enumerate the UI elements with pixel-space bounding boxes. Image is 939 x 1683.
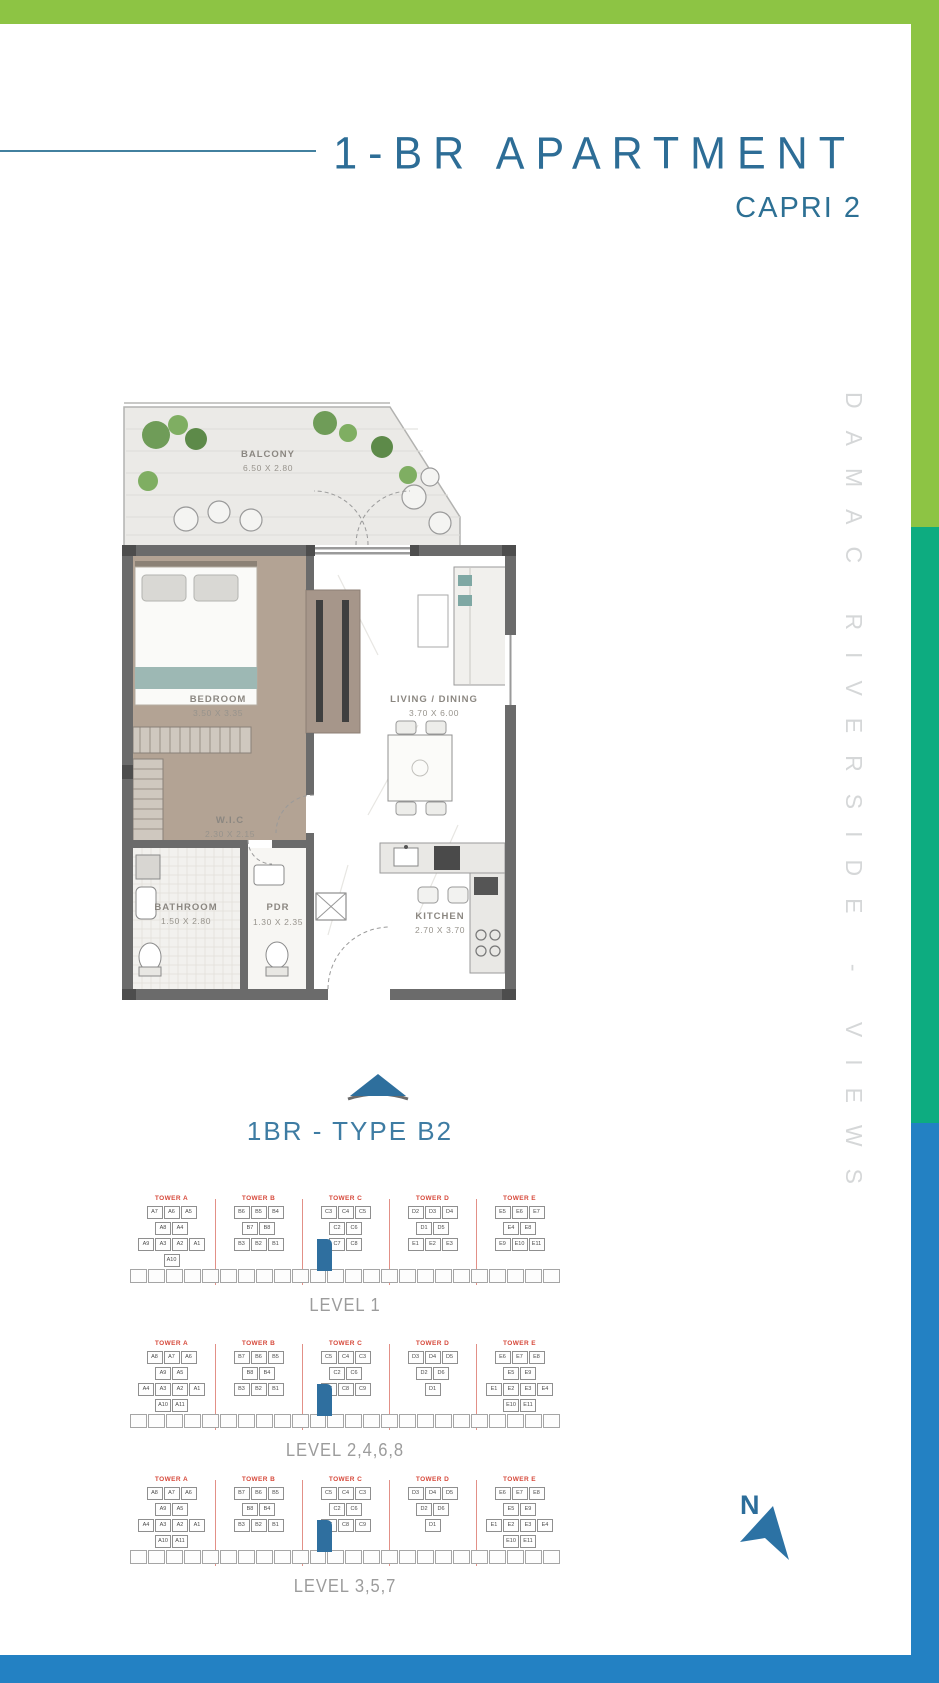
- unit-box: [363, 1414, 380, 1428]
- unit-box: E4: [537, 1519, 553, 1532]
- unit-box: [220, 1269, 237, 1283]
- coffee-table: [418, 595, 448, 647]
- level-caption: LEVEL 2,4,6,8: [145, 1440, 544, 1461]
- unit-box: C2: [329, 1367, 345, 1380]
- unit-box: [274, 1414, 291, 1428]
- unit-box: [166, 1269, 183, 1283]
- unit-box: C3: [355, 1351, 371, 1364]
- unit-box: B4: [259, 1503, 275, 1516]
- room-label: LIVING / DINING: [390, 694, 478, 705]
- unit-box: [220, 1550, 237, 1564]
- unit-box: E2: [503, 1383, 519, 1396]
- unit-box: [238, 1414, 255, 1428]
- unit-box: E8: [529, 1351, 545, 1364]
- unit-box: D3: [425, 1206, 441, 1219]
- unit-box: [345, 1414, 362, 1428]
- unit-box: B5: [268, 1351, 284, 1364]
- unit-box: [166, 1414, 183, 1428]
- unit-box: C8: [346, 1238, 362, 1251]
- unit-box: [292, 1550, 309, 1564]
- unit-box: A8: [155, 1222, 171, 1235]
- unit-box: [327, 1269, 344, 1283]
- podium-unit-strip: [130, 1269, 560, 1283]
- unit-box: C3: [321, 1206, 337, 1219]
- unit-box: [543, 1414, 560, 1428]
- unit-box: [507, 1550, 524, 1564]
- unit-box: [327, 1414, 344, 1428]
- unit-box: [417, 1414, 434, 1428]
- unit-box: [453, 1269, 470, 1283]
- podium-unit-strip: [130, 1414, 560, 1428]
- unit-box: D1: [416, 1222, 432, 1235]
- unit-box: A10: [164, 1254, 180, 1267]
- unit-box: [471, 1414, 488, 1428]
- unit-box: [489, 1550, 506, 1564]
- room-dims: 2.70 X 3.70: [415, 925, 465, 935]
- unit-box: A11: [172, 1535, 188, 1548]
- unit-box: A2: [172, 1383, 188, 1396]
- unit-box: A3: [155, 1519, 171, 1532]
- kitchen-counters: [380, 843, 505, 973]
- unit-box: A6: [181, 1351, 197, 1364]
- unit-box: [363, 1550, 380, 1564]
- unit-box: B2: [251, 1383, 267, 1396]
- unit-box: [471, 1269, 488, 1283]
- unit-box: C5: [355, 1206, 371, 1219]
- brand-vertical-text: DAMAC RIVERSIDE - VIEWS: [840, 392, 867, 1472]
- unit-box: E8: [520, 1222, 536, 1235]
- unit-box: [274, 1269, 291, 1283]
- unit-box: B5: [251, 1206, 267, 1219]
- highlighted-unit: [317, 1520, 332, 1552]
- unit-box: [543, 1269, 560, 1283]
- unit-box: [507, 1269, 524, 1283]
- unit-box: A7: [164, 1351, 180, 1364]
- unit-box: A2: [172, 1238, 188, 1251]
- unit-box: E5: [503, 1367, 519, 1380]
- unit-box: B3: [234, 1238, 250, 1251]
- unit-box: E3: [442, 1238, 458, 1251]
- room-label: BALCONY: [241, 449, 295, 460]
- highlighted-unit: [317, 1239, 332, 1271]
- unit-box: [543, 1550, 560, 1564]
- unit-box: E9: [495, 1238, 511, 1251]
- unit-box: [310, 1414, 327, 1428]
- bottom-accent-bar: [0, 1655, 939, 1683]
- tower-label: TOWER E: [476, 1340, 563, 1347]
- unit-box: [166, 1550, 183, 1564]
- unit-box: [202, 1269, 219, 1283]
- unit-box: [381, 1414, 398, 1428]
- dining-table: [388, 721, 452, 815]
- unit-box: A7: [164, 1487, 180, 1500]
- unit-box: [453, 1550, 470, 1564]
- balcony-area: BALCONY 6.50 X 2.80: [124, 403, 460, 547]
- unit-box: [327, 1550, 344, 1564]
- unit-box: [184, 1414, 201, 1428]
- unit-box: D1: [425, 1383, 441, 1396]
- unit-box: A10: [155, 1535, 171, 1548]
- bed: [135, 561, 257, 705]
- unit-box: E11: [520, 1535, 536, 1548]
- tower-label: TOWER B: [215, 1195, 302, 1202]
- unit-box: B6: [234, 1206, 250, 1219]
- unit-box: [130, 1550, 147, 1564]
- room-label: PDR: [266, 902, 289, 913]
- unit-box: [489, 1414, 506, 1428]
- level-diagram-1: TOWER AA7A6A5A8A4A9A3A2A1A10TOWER BB6B5B…: [128, 1195, 562, 1295]
- tower-label: TOWER C: [302, 1195, 389, 1202]
- unit-box: B2: [251, 1519, 267, 1532]
- unit-box: [274, 1550, 291, 1564]
- unit-box: A9: [155, 1367, 171, 1380]
- unit-box: C9: [355, 1383, 371, 1396]
- unit-box: D3: [408, 1487, 424, 1500]
- unit-box: B7: [234, 1351, 250, 1364]
- unit-box: E6: [512, 1206, 528, 1219]
- unit-box: A10: [155, 1399, 171, 1412]
- unit-box: [202, 1550, 219, 1564]
- unit-box: A3: [155, 1238, 171, 1251]
- unit-box: D2: [408, 1206, 424, 1219]
- unit-box: B4: [268, 1206, 284, 1219]
- unit-box: A1: [189, 1238, 205, 1251]
- level-diagram-3: TOWER AA8A7A6A9A5A4A3A2A1A10A11TOWER BB7…: [128, 1476, 562, 1576]
- unit-box: A9: [155, 1503, 171, 1516]
- entrance-arrow-icon: [345, 1068, 411, 1102]
- unit-box: D3: [408, 1351, 424, 1364]
- unit-box: D5: [433, 1222, 449, 1235]
- unit-box: C4: [338, 1206, 354, 1219]
- unit-box: E10: [512, 1238, 528, 1251]
- unit-box: E10: [503, 1535, 519, 1548]
- unit-box: A5: [181, 1206, 197, 1219]
- unit-box: [184, 1550, 201, 1564]
- unit-box: [220, 1414, 237, 1428]
- unit-box: D4: [425, 1351, 441, 1364]
- unit-box: A11: [172, 1399, 188, 1412]
- unit-box: A1: [189, 1383, 205, 1396]
- unit-box: A1: [189, 1519, 205, 1532]
- tower-label: TOWER D: [389, 1340, 476, 1347]
- unit-box: D1: [425, 1519, 441, 1532]
- floor-plan-drawing: BALCONY 6.50 X 2.80: [118, 395, 518, 1010]
- unit-box: E1: [486, 1519, 502, 1532]
- unit-box: [256, 1550, 273, 1564]
- room-label: BATHROOM: [154, 902, 217, 913]
- tower-label: TOWER B: [215, 1340, 302, 1347]
- page-subtitle: CAPRI 2: [735, 192, 862, 225]
- unit-box: E4: [537, 1383, 553, 1396]
- brochure-page: 1-BR APARTMENT CAPRI 2 DAMAC RIVERSIDE -…: [0, 0, 939, 1683]
- unit-box: E4: [503, 1222, 519, 1235]
- unit-box: A4: [138, 1519, 154, 1532]
- unit-box: [507, 1414, 524, 1428]
- unit-box: B8: [242, 1367, 258, 1380]
- unit-box: [525, 1414, 542, 1428]
- tower-label: TOWER C: [302, 1340, 389, 1347]
- unit-box: D5: [442, 1351, 458, 1364]
- unit-box: [417, 1550, 434, 1564]
- unit-box: [489, 1269, 506, 1283]
- unit-box: [292, 1414, 309, 1428]
- unit-box: D6: [433, 1503, 449, 1516]
- level-caption: LEVEL 1: [145, 1295, 544, 1316]
- service-duct: [316, 893, 346, 920]
- unit-box: C8: [338, 1383, 354, 1396]
- page-title: 1-BR APARTMENT: [333, 128, 856, 180]
- unit-box: E1: [408, 1238, 424, 1251]
- unit-box: C6: [346, 1367, 362, 1380]
- north-indicator: N: [718, 1486, 808, 1576]
- unit-box: E11: [529, 1238, 545, 1251]
- unit-box: C5: [321, 1487, 337, 1500]
- right-accent-bar-blue: [911, 1123, 939, 1683]
- unit-box: C6: [346, 1503, 362, 1516]
- unit-box: D4: [425, 1487, 441, 1500]
- unit-box: E5: [495, 1206, 511, 1219]
- tower-label: TOWER D: [389, 1476, 476, 1483]
- room-dims: 3.50 X 3.35: [193, 708, 243, 718]
- unit-box: E5: [503, 1503, 519, 1516]
- unit-box: [435, 1269, 452, 1283]
- unit-box: C2: [329, 1503, 345, 1516]
- unit-box: E3: [520, 1519, 536, 1532]
- unit-box: B3: [234, 1383, 250, 1396]
- unit-box: A2: [172, 1519, 188, 1532]
- podium-unit-strip: [130, 1550, 560, 1564]
- unit-box: A7: [147, 1206, 163, 1219]
- room-label: KITCHEN: [415, 911, 464, 922]
- unit-box: B7: [242, 1222, 258, 1235]
- unit-box: B8: [259, 1222, 275, 1235]
- unit-box: E9: [520, 1367, 536, 1380]
- unit-box: B2: [251, 1238, 267, 1251]
- unit-box: E10: [503, 1399, 519, 1412]
- right-accent-bar-green: [911, 0, 939, 527]
- unit-box: [525, 1269, 542, 1283]
- unit-box: [256, 1414, 273, 1428]
- unit-box: C4: [338, 1351, 354, 1364]
- tower-label: TOWER E: [476, 1195, 563, 1202]
- unit-box: D6: [433, 1367, 449, 1380]
- unit-box: B6: [251, 1487, 267, 1500]
- unit-box: C3: [355, 1487, 371, 1500]
- unit-box: C5: [321, 1351, 337, 1364]
- unit-box: [148, 1269, 165, 1283]
- unit-box: B5: [268, 1487, 284, 1500]
- unit-box: [345, 1550, 362, 1564]
- plan-type-label: 1BR - TYPE B2: [150, 1116, 550, 1147]
- tower-label: TOWER E: [476, 1476, 563, 1483]
- unit-box: [148, 1550, 165, 1564]
- tower-label: TOWER A: [128, 1195, 215, 1202]
- unit-box: [399, 1550, 416, 1564]
- unit-box: B7: [234, 1487, 250, 1500]
- room-dims: 2.30 X 2.15: [205, 829, 255, 839]
- unit-box: [130, 1269, 147, 1283]
- top-accent-bar: [0, 0, 939, 24]
- unit-box: C2: [329, 1222, 345, 1235]
- room-dims: 1.50 X 2.80: [161, 916, 211, 926]
- unit-box: E2: [503, 1519, 519, 1532]
- unit-box: [435, 1414, 452, 1428]
- unit-box: E3: [520, 1383, 536, 1396]
- unit-box: [202, 1414, 219, 1428]
- unit-box: D5: [442, 1487, 458, 1500]
- unit-box: [417, 1269, 434, 1283]
- unit-box: [363, 1269, 380, 1283]
- unit-box: [399, 1269, 416, 1283]
- unit-box: [256, 1269, 273, 1283]
- unit-box: B6: [251, 1351, 267, 1364]
- unit-box: [238, 1269, 255, 1283]
- unit-box: D4: [442, 1206, 458, 1219]
- tower-label: TOWER B: [215, 1476, 302, 1483]
- right-accent-bar-emerald: [911, 527, 939, 1123]
- unit-box: C8: [338, 1519, 354, 1532]
- unit-box: E7: [512, 1487, 528, 1500]
- tower-label: TOWER C: [302, 1476, 389, 1483]
- unit-box: [471, 1550, 488, 1564]
- unit-box: E2: [425, 1238, 441, 1251]
- unit-box: [310, 1550, 327, 1564]
- unit-box: B8: [242, 1503, 258, 1516]
- unit-box: B1: [268, 1238, 284, 1251]
- room-label: BEDROOM: [190, 694, 247, 705]
- unit-box: E11: [520, 1399, 536, 1412]
- unit-box: A6: [181, 1487, 197, 1500]
- tower-label: TOWER D: [389, 1195, 476, 1202]
- unit-box: A4: [172, 1222, 188, 1235]
- unit-box: A8: [147, 1487, 163, 1500]
- unit-box: E6: [495, 1351, 511, 1364]
- unit-box: E1: [486, 1383, 502, 1396]
- unit-box: A9: [138, 1238, 154, 1251]
- unit-box: B4: [259, 1367, 275, 1380]
- sofa: [454, 567, 506, 685]
- unit-box: [381, 1269, 398, 1283]
- unit-box: [399, 1414, 416, 1428]
- unit-box: [435, 1550, 452, 1564]
- unit-box: [381, 1550, 398, 1564]
- unit-box: E9: [520, 1503, 536, 1516]
- title-rule-line: [0, 150, 316, 152]
- unit-box: D2: [416, 1367, 432, 1380]
- room-dims: 1.30 X 2.35: [253, 917, 303, 927]
- level-caption: LEVEL 3,5,7: [145, 1576, 544, 1597]
- unit-box: A3: [155, 1383, 171, 1396]
- unit-box: E8: [529, 1487, 545, 1500]
- unit-box: B1: [268, 1383, 284, 1396]
- unit-box: C4: [338, 1487, 354, 1500]
- unit-box: E7: [529, 1206, 545, 1219]
- unit-box: A4: [138, 1383, 154, 1396]
- unit-box: E7: [512, 1351, 528, 1364]
- unit-box: [310, 1269, 327, 1283]
- room-label: W.I.C: [216, 815, 244, 826]
- unit-box: [148, 1414, 165, 1428]
- unit-box: [525, 1550, 542, 1564]
- unit-box: A8: [147, 1351, 163, 1364]
- unit-box: [345, 1269, 362, 1283]
- unit-box: A5: [172, 1503, 188, 1516]
- room-dims: 6.50 X 2.80: [243, 463, 293, 473]
- tower-label: TOWER A: [128, 1476, 215, 1483]
- wardrobe: [306, 590, 360, 733]
- tower-label: TOWER A: [128, 1340, 215, 1347]
- unit-box: B3: [234, 1519, 250, 1532]
- highlighted-unit: [317, 1384, 332, 1416]
- unit-box: [453, 1414, 470, 1428]
- unit-box: [292, 1269, 309, 1283]
- room-dims: 3.70 X 6.00: [409, 708, 459, 718]
- unit-box: A5: [172, 1367, 188, 1380]
- unit-box: A6: [164, 1206, 180, 1219]
- unit-box: [184, 1269, 201, 1283]
- unit-box: [130, 1414, 147, 1428]
- unit-box: E6: [495, 1487, 511, 1500]
- unit-box: D2: [416, 1503, 432, 1516]
- unit-box: C9: [355, 1519, 371, 1532]
- north-arrow-icon: [718, 1486, 808, 1576]
- level-diagram-2: TOWER AA8A7A6A9A5A4A3A2A1A10A11TOWER BB7…: [128, 1340, 562, 1440]
- unit-box: C6: [346, 1222, 362, 1235]
- unit-box: [238, 1550, 255, 1564]
- unit-box: B1: [268, 1519, 284, 1532]
